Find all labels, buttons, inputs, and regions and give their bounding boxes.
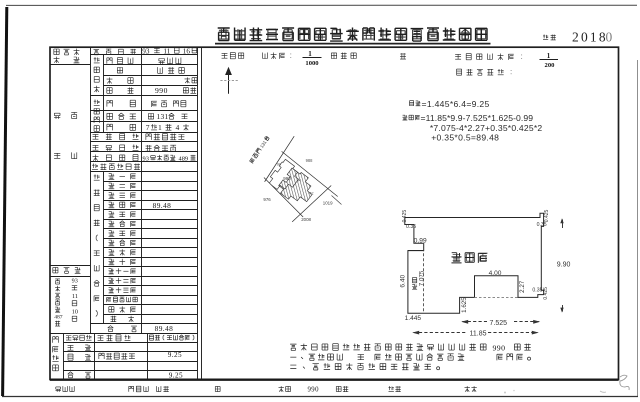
svg-text:0.425: 0.425 xyxy=(543,287,549,300)
svg-text:42: 42 xyxy=(309,191,313,196)
svg-text:93: 93 xyxy=(143,155,149,162)
svg-text:131: 131 xyxy=(259,139,268,149)
svg-text:1.445: 1.445 xyxy=(405,315,422,322)
svg-text:990: 990 xyxy=(283,176,291,181)
svg-text:131: 131 xyxy=(157,112,169,121)
svg-text:*7.075-4*2.27+0.35*0.425*2: *7.075-4*2.27+0.35*0.425*2 xyxy=(430,123,542,133)
svg-text:1: 1 xyxy=(308,50,312,58)
svg-text:16: 16 xyxy=(183,47,191,55)
svg-text:0.35: 0.35 xyxy=(537,222,547,228)
svg-text:990: 990 xyxy=(493,343,506,352)
svg-text:7.075: 7.075 xyxy=(418,270,425,286)
svg-text:990: 990 xyxy=(155,86,168,95)
svg-text:2.27: 2.27 xyxy=(519,280,526,293)
svg-text:93: 93 xyxy=(142,47,150,55)
svg-text:990: 990 xyxy=(308,387,320,394)
svg-text:0: 0 xyxy=(606,30,613,45)
svg-text:9.90: 9.90 xyxy=(557,261,571,268)
svg-text:0.99: 0.99 xyxy=(414,237,427,244)
svg-text:7: 7 xyxy=(146,123,150,132)
svg-text:1000: 1000 xyxy=(305,60,319,67)
svg-text:1: 1 xyxy=(547,52,551,60)
svg-text:489: 489 xyxy=(179,155,189,162)
svg-text:9.25: 9.25 xyxy=(168,351,182,359)
svg-text:=1.445*6.4=9.25: =1.445*6.4=9.25 xyxy=(422,99,490,109)
svg-text:2008: 2008 xyxy=(301,217,311,222)
svg-text:4.00: 4.00 xyxy=(489,270,502,277)
svg-text:976: 976 xyxy=(263,197,271,202)
svg-text:89.48: 89.48 xyxy=(153,201,172,210)
svg-text:7.525: 7.525 xyxy=(490,320,508,327)
svg-text:4: 4 xyxy=(176,123,180,132)
svg-text:11: 11 xyxy=(72,293,78,300)
svg-text:10: 10 xyxy=(72,309,78,316)
svg-text:6.40: 6.40 xyxy=(400,274,407,287)
svg-text:0.35: 0.35 xyxy=(406,224,416,230)
svg-text:93: 93 xyxy=(72,277,78,284)
svg-text:1.625: 1.625 xyxy=(461,297,468,313)
svg-text:1: 1 xyxy=(158,123,162,132)
svg-text:988: 988 xyxy=(306,158,314,163)
svg-text:200: 200 xyxy=(545,62,556,69)
svg-text:11.85: 11.85 xyxy=(470,331,487,338)
svg-text:1019: 1019 xyxy=(323,201,333,206)
svg-text:2018: 2018 xyxy=(572,30,608,45)
svg-text:89.48: 89.48 xyxy=(155,324,174,333)
svg-text:0.425: 0.425 xyxy=(544,209,550,222)
svg-text:0.425: 0.425 xyxy=(402,210,408,223)
svg-text:0.35: 0.35 xyxy=(532,287,542,293)
svg-text:=11.85*9.9-7.525*1.625-0.99: =11.85*9.9-7.525*1.625-0.99 xyxy=(421,113,534,123)
svg-text:11: 11 xyxy=(163,47,170,55)
svg-text:+0.35*0.5=89.48: +0.35*0.5=89.48 xyxy=(431,133,499,143)
svg-text:487: 487 xyxy=(54,315,63,321)
svg-text:9.25: 9.25 xyxy=(169,371,183,379)
